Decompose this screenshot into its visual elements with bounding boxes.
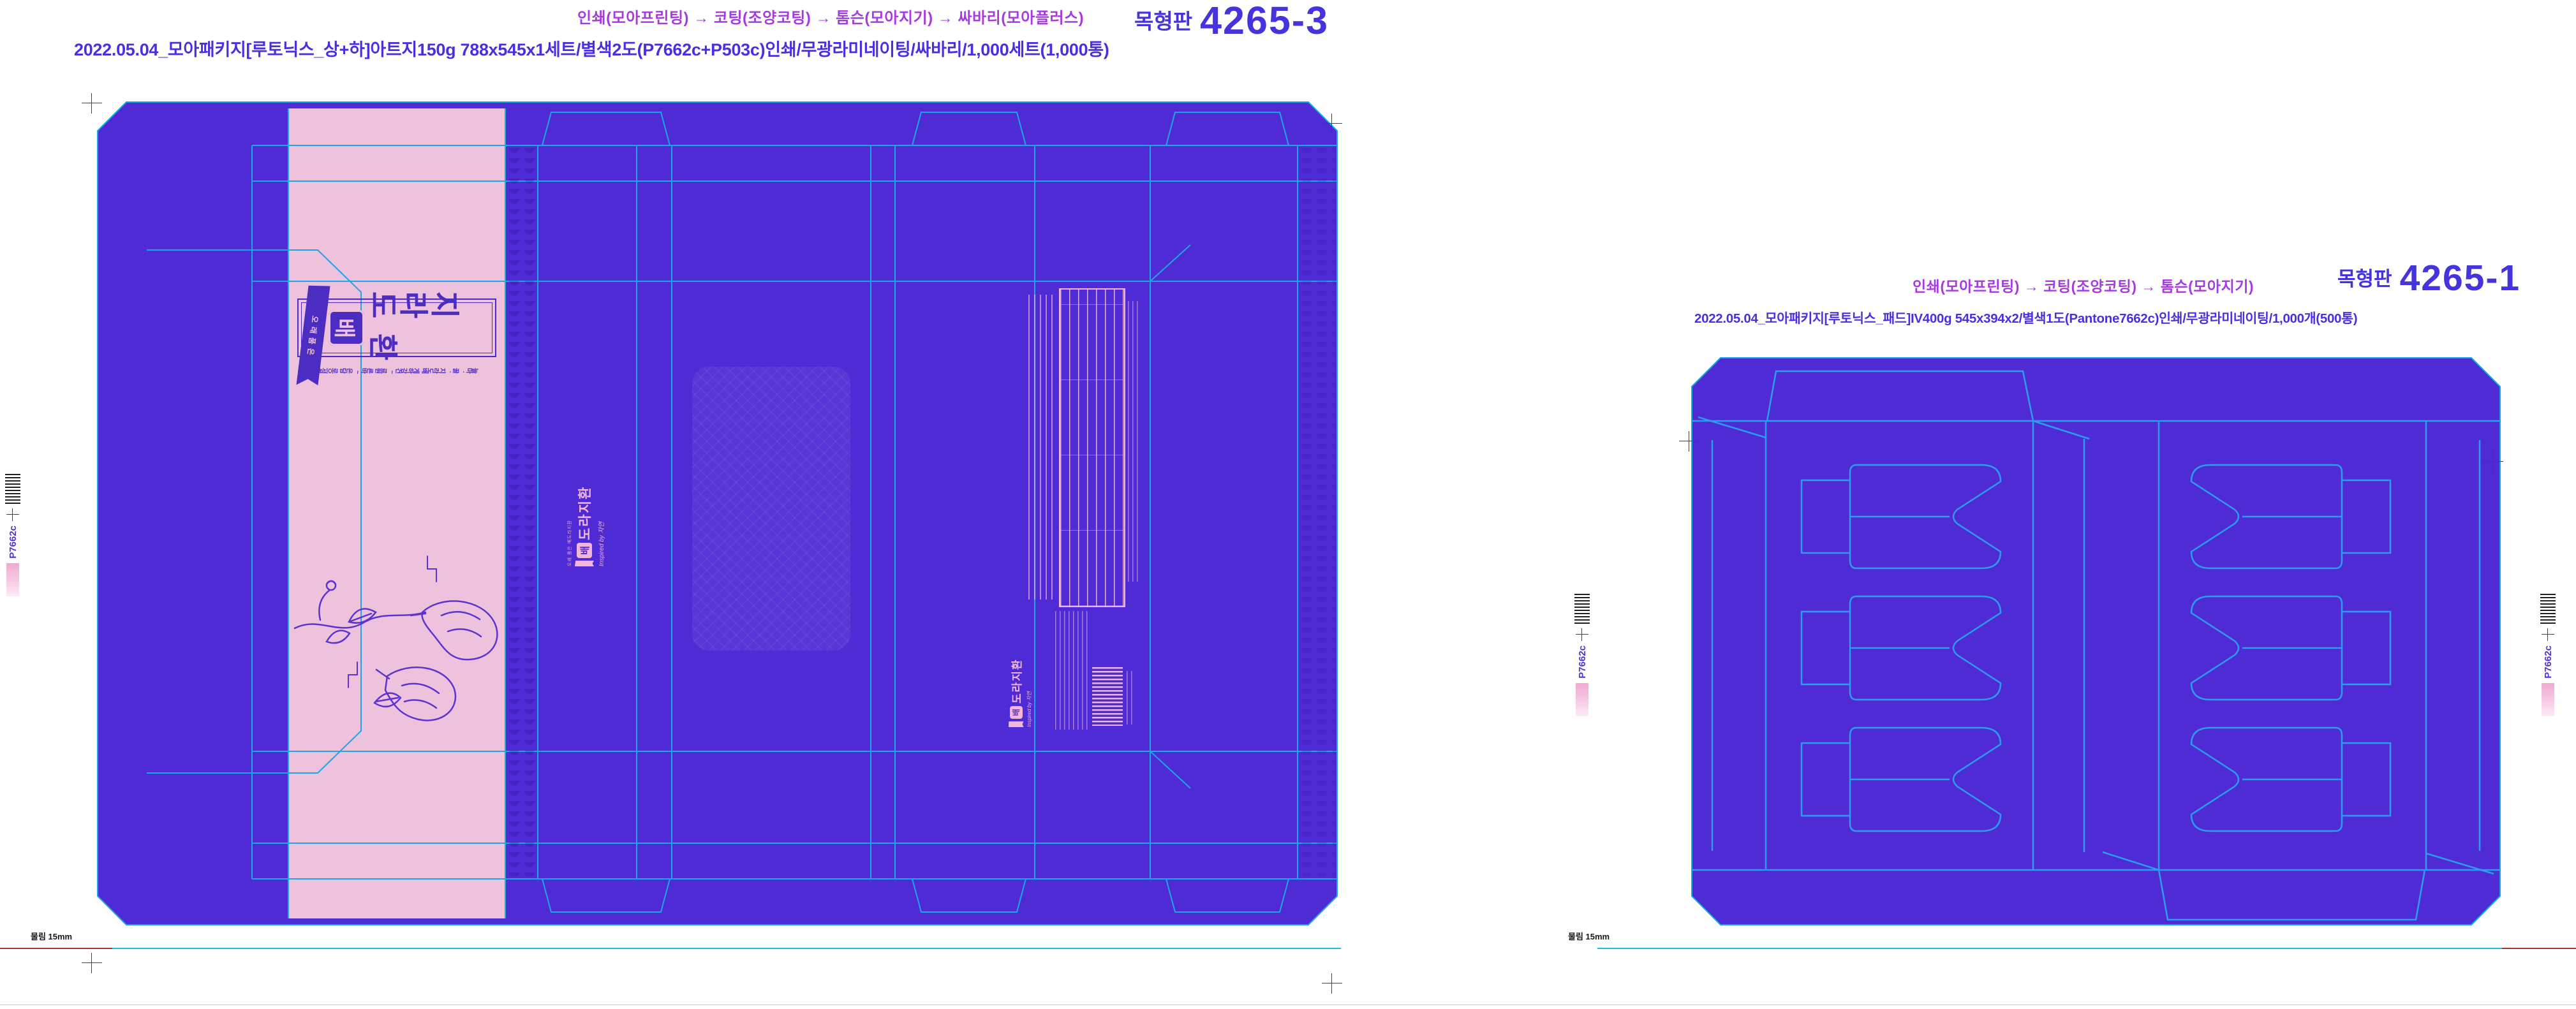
corner-registration-icon [1322,114,1342,134]
gripper-label-right: 물림 15mm [1568,930,1610,942]
trim-line [0,948,112,949]
dieline-right-panel [1692,358,2500,925]
plate-title-right: 목형판 4265-1 [2337,260,2520,297]
pantone-label: P7662c [2543,645,2554,679]
side-logo-caption: 오래 품은 배도라지환 [566,477,573,566]
mini-product-title: 도라지환 [1008,658,1024,703]
sheet-edge-line [0,1005,2576,1005]
band-title-row: 배 도라지환 [301,302,492,353]
plate-number-right: 4265-1 [2400,260,2521,297]
barcode-digits [1127,671,1133,725]
color-control-strip: P7662c [2540,593,2556,716]
ink-swatch [2542,683,2554,716]
dieline-layer [0,0,2576,1009]
legal-text-block [1128,301,1141,582]
pantone-label: P7662c [8,526,19,559]
corner-registration-icon [1322,973,1342,994]
inspired-script: Inspired by 자연 [1026,656,1033,727]
trim-line [1597,948,2502,949]
trim-line [112,948,1341,949]
pink-band [288,108,505,918]
ink-swatch [1576,683,1588,716]
ink-swatch [6,563,19,596]
color-control-strip: P7662c [5,473,20,596]
seal-stamp: 배 [329,310,364,346]
mark-microtext [2540,593,2556,624]
legal-text-block [1028,295,1054,600]
process-flow-left: 인쇄(모아프린팅) → 코팅(조양코팅) → 톰슨(모아지기) → 싸바리(모아… [577,5,1084,27]
right-panel-outline [1692,358,2500,925]
registration-cross-icon [6,508,19,521]
corner-registration-icon [82,93,102,114]
gripper-label-left: 물림 15mm [31,930,72,942]
corner-registration-icon [2483,452,2503,472]
pantone-label: P7662c [1577,645,1588,679]
product-title: 도라지환 [369,286,492,370]
texture-strip [507,148,537,876]
barcode [1092,667,1123,726]
plate-label-right: 목형판 [2337,263,2392,297]
mini-seal-stamp: 배 [1010,706,1023,719]
mark-microtext [5,473,20,504]
corner-registration-icon [82,953,102,973]
spec-line-right: 2022.05.04_모아패키지[루토닉스_패드]IV400g 545x394x… [1694,307,2357,327]
artboard: 인쇄(모아프린팅) → 코팅(조양코팅) → 톰슨(모아지기) → 싸바리(모아… [0,0,2576,1009]
mini-product-title: 도라지환 [575,486,594,540]
plate-number-left: 4265-3 [1200,1,1329,40]
mini-seal-stamp: 배 [577,543,592,558]
embossed-face-panel [692,367,850,651]
registration-cross-icon [1576,628,1588,641]
mini-ribbon [1009,721,1024,727]
texture-strip [1299,148,1336,876]
inspired-script: Inspired by 자연 [596,477,605,566]
color-control-strip: P7662c [1574,593,1590,716]
registration-cross-icon [2542,628,2554,641]
product-info-table [1059,288,1125,607]
ribbon-text: 오래품은 [307,314,319,358]
mark-microtext [1574,593,1590,624]
band-tagline: 정성으로 담은 ~ 바른 원료 ~ 건강하게 배도라지 · 꿀 · 마늘 [293,366,500,376]
side-logo-a: 오래 품은 배도라지환 배 도라지환 Inspired by 자연 [566,477,656,516]
plate-title-left: 목형판 4265-3 [1134,1,1329,40]
trim-line [2502,948,2576,949]
legal-text-block [1055,611,1088,730]
mini-ribbon [575,561,594,566]
plate-label-left: 목형판 [1134,4,1192,40]
process-flow-right: 인쇄(모아프린팅) → 코팅(조양코팅) → 톰슨(모아지기) [1913,274,2254,296]
spec-line-left: 2022.05.04_모아패키지[루토닉스_상+하]아트지150g 788x54… [74,36,1109,61]
corner-registration-icon [1679,431,1699,452]
